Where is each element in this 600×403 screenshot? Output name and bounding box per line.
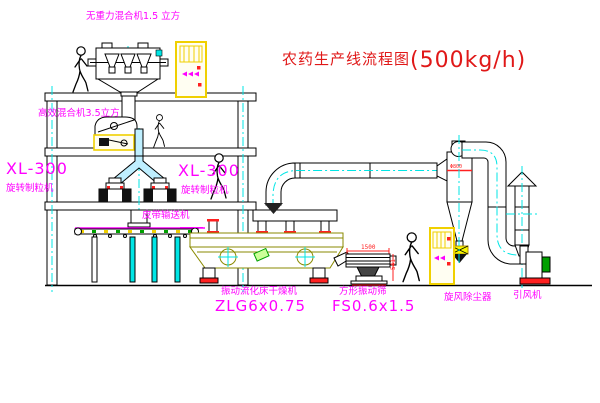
label-belt-conveyor: 皮带输送机 [142, 211, 190, 221]
fan-motor [542, 257, 550, 272]
label-sieve-name: 方形振动筛 [339, 287, 387, 297]
control-cabinet-1 [176, 42, 206, 97]
person-figure [73, 47, 88, 92]
fluid-bed-dryer-drawing [180, 219, 351, 283]
floor-slab-mid [45, 148, 256, 156]
label-granulator-name-left: 旋转制粒机 [6, 184, 54, 194]
belt-conveyor-drawing [75, 228, 206, 282]
label-zero-gravity-mixer: 无重力混合机1.5 立方 [86, 12, 180, 22]
rotary-granulator-right-drawing [144, 178, 176, 202]
flowchart-canvas: 1500 541 Φ800 [0, 0, 600, 403]
person-figure [154, 115, 165, 148]
sieve-height-dimension: 541 [390, 259, 397, 270]
cyclone-inlet-reducer [437, 159, 447, 181]
mixer-funnels [105, 54, 151, 73]
discharge-duct [135, 129, 143, 157]
motor-silhouette [99, 138, 109, 146]
title-capacity: (500kg/h) [410, 48, 526, 73]
cyan-fitting [156, 50, 162, 56]
fan-base [520, 278, 550, 284]
person-figure [403, 233, 419, 282]
label-cyclone: 旋风除尘器 [444, 293, 492, 303]
label-granulator-model-left: XL-300 [6, 161, 68, 177]
induced-draft-fan-drawing [520, 246, 550, 284]
feed-pipe-1 [122, 96, 135, 120]
belt-rollers [94, 235, 187, 238]
control-cabinet-2 [430, 228, 454, 284]
rotary-granulator-left-drawing [99, 178, 131, 202]
exhaust-duct-drawing [253, 163, 446, 221]
square-vibrating-sieve-drawing: 1500 541 [346, 244, 397, 285]
cyclone-diameter-dimension: Φ800 [450, 164, 462, 170]
sieve-width-dimension: 1500 [361, 244, 376, 251]
label-granulator-model-right: XL-300 [178, 163, 240, 179]
drawing-title: 农药生产线流程图(500kg/h) [282, 48, 526, 73]
label-fan: 引风机 [513, 291, 542, 301]
label-dryer-model: ZLG6x0.75 [215, 299, 306, 314]
title-text: 农药生产线流程图 [282, 50, 410, 68]
label-dryer-name: 振动流化床干燥机 [221, 287, 297, 297]
floor-slab-top [45, 93, 256, 101]
label-high-efficiency-mixer: 高效混合机3.5立方 [38, 109, 120, 119]
label-sieve-model: FS0.6x1.5 [332, 299, 415, 314]
feed-spreader-box [253, 210, 337, 221]
label-granulator-name-right: 旋转制粒机 [181, 186, 229, 196]
floor-slab-low [45, 202, 256, 210]
duct-elbow [266, 163, 295, 205]
